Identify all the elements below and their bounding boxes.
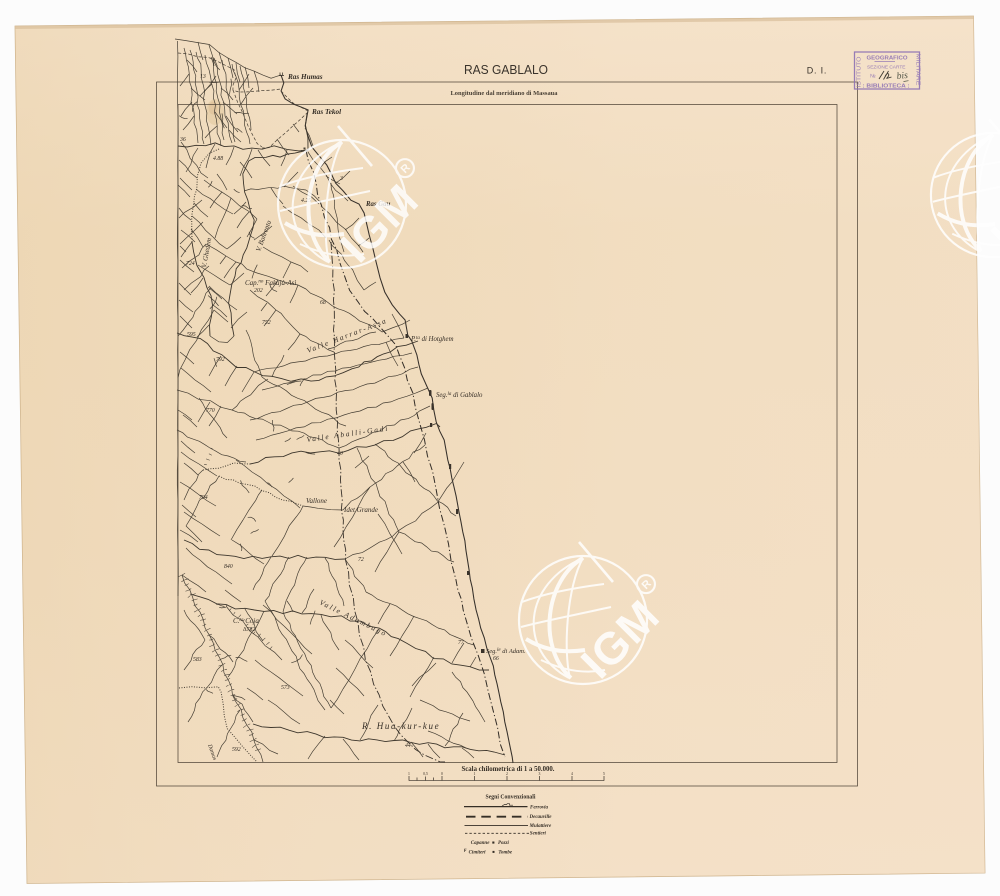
svg-text:40: 40	[337, 450, 343, 457]
svg-text:573: 573	[281, 685, 290, 691]
svg-text:3: 3	[339, 176, 343, 182]
svg-text:Cap.no Fakajà-Asì: Cap.no Fakajà-Asì	[245, 279, 296, 287]
svg-text:Ras Humas: Ras Humas	[287, 73, 323, 81]
svg-text:72: 72	[358, 557, 364, 563]
svg-text:ISTITUTO: ISTITUTO	[857, 56, 863, 87]
svg-text:3: 3	[539, 772, 541, 776]
svg-text:4: 4	[571, 772, 573, 776]
svg-text:C.ta Coja: C.ta Coja	[233, 617, 259, 625]
svg-text:R. Hua-kur-kue: R. Hua-kur-kue	[361, 721, 440, 731]
svg-text:Cimiteri: Cimiteri	[469, 851, 487, 856]
svg-text:Seg.la di Gablalo: Seg.la di Gablalo	[436, 392, 483, 399]
svg-text:1: 1	[408, 772, 410, 776]
svg-text:36: 36	[179, 137, 186, 143]
svg-text:Segni Convenzionali: Segni Convenzionali	[486, 795, 536, 801]
svg-text:44: 44	[405, 742, 411, 749]
svg-text:№: №	[870, 74, 876, 80]
svg-text:202: 202	[254, 288, 263, 294]
svg-text:Scala chilometrica di 1 a 50.0: Scala chilometrica di 1 a 50.000.	[462, 765, 555, 773]
svg-text:Ras Tekol: Ras Tekol	[311, 108, 341, 116]
svg-text:840: 840	[224, 563, 233, 570]
svg-text:Sentieri: Sentieri	[530, 832, 547, 837]
svg-text:MILITARE: MILITARE	[915, 54, 921, 87]
svg-text:752: 752	[262, 320, 271, 326]
svg-text:724: 724	[186, 260, 195, 267]
svg-text:2: 2	[506, 772, 508, 776]
svg-text:13: 13	[200, 74, 206, 80]
svg-text:Seg.le di Adam.: Seg.le di Adam.	[486, 648, 526, 655]
svg-text:∆782: ∆782	[243, 627, 255, 633]
svg-text:5: 5	[603, 772, 605, 776]
svg-text:66: 66	[493, 656, 499, 662]
svg-text:792: 792	[216, 357, 225, 363]
svg-text:770: 770	[206, 408, 215, 414]
svg-text:Vallone: Vallone	[306, 497, 327, 505]
svg-text:RAS GABLALO: RAS GABLALO	[464, 63, 548, 77]
svg-text:Longitudine dal meridiano di M: Longitudine dal meridiano di Massaua	[451, 90, 559, 97]
svg-text:4.88: 4.88	[213, 155, 223, 162]
svg-text:0: 0	[441, 772, 443, 776]
svg-text:Ferrovia: Ferrovia	[530, 806, 549, 811]
svg-text:583: 583	[193, 657, 202, 663]
svg-text:: BIBLIOTECA :: : BIBLIOTECA :	[863, 84, 910, 90]
svg-text:Decauville: Decauville	[529, 815, 553, 820]
svg-text:68: 68	[320, 300, 326, 306]
svg-text:Capanne: Capanne	[471, 841, 490, 846]
svg-text:Mulattiere: Mulattiere	[529, 824, 552, 829]
svg-text:1: 1	[474, 772, 476, 776]
svg-text:592: 592	[232, 747, 241, 753]
svg-text:bis: bis	[896, 71, 908, 82]
svg-text:Idet Grande: Idet Grande	[343, 506, 378, 514]
svg-text:SEZIONE CARTE: SEZIONE CARTE	[867, 65, 906, 70]
svg-text:794: 794	[199, 494, 208, 501]
svg-text:GEOGRAFICO: GEOGRAFICO	[867, 56, 909, 62]
svg-text:Tombe: Tombe	[498, 851, 512, 856]
svg-text:D. I.: D. I.	[807, 66, 828, 76]
svg-text:595: 595	[187, 332, 196, 338]
svg-text:Pozzi: Pozzi	[498, 841, 509, 846]
